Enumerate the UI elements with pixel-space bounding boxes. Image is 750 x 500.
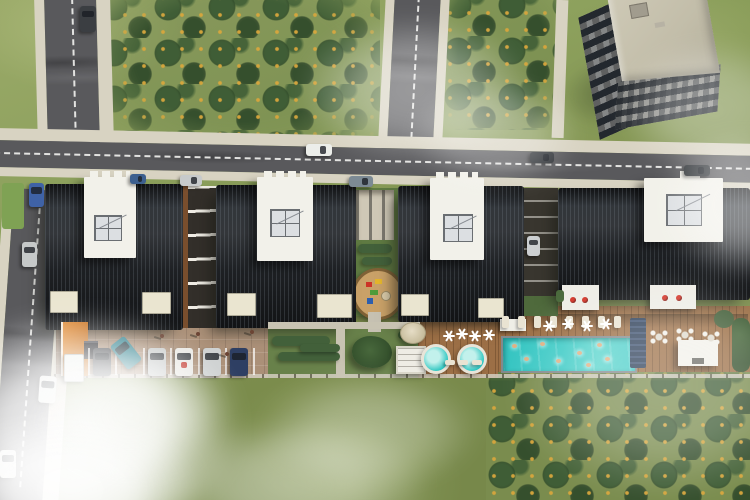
car-red-detail — [181, 362, 187, 368]
street-car-blue — [130, 174, 146, 184]
terrace-plant — [556, 290, 564, 302]
swimmer — [605, 357, 610, 361]
roof-vents — [264, 171, 307, 178]
sun-lounger — [614, 316, 621, 328]
play-equipment-red — [366, 282, 372, 287]
parking-stall-line — [88, 348, 90, 375]
swimmer — [556, 359, 561, 363]
swimmer — [597, 343, 602, 347]
terrace-pavilion — [650, 285, 696, 309]
pedestrian — [250, 330, 254, 334]
white-parasol — [543, 320, 555, 332]
white-parasol — [469, 330, 481, 342]
kids-pool-2 — [457, 344, 487, 374]
play-equipment-yellow — [375, 279, 382, 284]
garden-tree — [352, 336, 392, 368]
street-car-gray — [349, 176, 373, 187]
street-car-white — [0, 450, 16, 478]
beige-parasol — [400, 322, 426, 344]
street-car-dark — [530, 152, 554, 163]
hedge — [300, 344, 340, 352]
parking-stall-line — [253, 348, 255, 375]
tower-roof — [606, 0, 720, 81]
roof-skylight — [227, 293, 256, 316]
white-parasol — [443, 330, 455, 342]
roof-skylight — [401, 294, 429, 316]
penthouse-4 — [644, 178, 723, 242]
street-car-white — [38, 375, 57, 403]
white-parasol — [562, 318, 574, 330]
road-vertical-top-left — [34, 0, 114, 147]
swimmer — [577, 351, 582, 355]
tree-cluster-mid — [442, 0, 564, 130]
navy-loungers — [630, 318, 646, 368]
street-van-blue — [29, 183, 44, 207]
red-umbrella — [676, 295, 682, 301]
street-car-silver — [22, 242, 37, 267]
courtyard-greenery — [524, 296, 558, 316]
play-equipment-green — [370, 290, 378, 295]
red-umbrella — [662, 295, 668, 301]
roof-skylight — [50, 291, 78, 313]
white-parasol — [581, 320, 593, 332]
sun-lounger — [472, 360, 482, 365]
hedge — [362, 257, 392, 265]
roof-skylight — [317, 294, 352, 318]
delivery-truck — [64, 354, 84, 382]
kids-pool-1 — [421, 344, 451, 374]
parked-car-courtyard — [527, 236, 540, 256]
parked-car-silver — [203, 348, 221, 376]
parked-car-silver — [148, 348, 166, 376]
play-equipment-blue — [367, 298, 373, 304]
white-parasol — [456, 328, 468, 340]
parking-stall-line — [170, 348, 172, 375]
seating-group — [702, 331, 720, 345]
penthouse-1 — [84, 177, 136, 258]
red-umbrella — [582, 297, 588, 303]
street-car-dark — [80, 6, 96, 32]
aerial-render — [0, 0, 750, 500]
swimmer — [524, 357, 529, 361]
roof-vents — [90, 171, 130, 178]
courtyard-wall — [356, 190, 394, 240]
sun-lounger — [458, 360, 468, 365]
main-pool — [501, 336, 637, 373]
parked-car-navy — [230, 348, 248, 376]
grass-patch — [2, 183, 24, 229]
pedestrian — [225, 352, 229, 356]
roof-skylight — [142, 292, 171, 314]
deck-hedge — [714, 310, 734, 328]
terrace-pavilion — [562, 285, 599, 310]
tree-cluster-left — [98, 0, 380, 144]
swimmer — [540, 342, 545, 346]
roof-vents — [436, 172, 477, 179]
roof-skylight — [478, 298, 504, 318]
red-umbrella — [570, 297, 576, 303]
white-parasol — [600, 318, 612, 330]
hedge — [278, 352, 340, 361]
sun-lounger — [518, 316, 525, 328]
parking-stall-line — [198, 348, 200, 375]
road-vertical-top-center — [378, 0, 450, 148]
hedge — [358, 244, 392, 253]
seating-group — [650, 330, 668, 344]
penthouse-3 — [430, 178, 484, 260]
orchard — [486, 368, 750, 500]
high-rise-tower — [575, 0, 728, 132]
pedestrian — [160, 334, 164, 338]
seating-group — [676, 328, 694, 342]
street-car-white — [306, 144, 332, 156]
pedestrian — [196, 332, 200, 336]
street-car-dark — [684, 165, 710, 176]
street-car-silver — [180, 175, 202, 186]
swimmer — [512, 344, 517, 348]
penthouse-2 — [257, 177, 313, 261]
sun-lounger — [534, 316, 541, 328]
parked-car-gray — [93, 348, 111, 376]
sun-lounger — [502, 316, 509, 328]
white-parasol — [483, 329, 495, 341]
deck-hedge — [732, 318, 750, 372]
swimmer — [586, 363, 591, 367]
pool-house-door — [692, 358, 704, 364]
parking-stall-line — [143, 348, 145, 375]
sun-lounger — [445, 360, 455, 365]
play-equipment-round — [381, 291, 391, 301]
